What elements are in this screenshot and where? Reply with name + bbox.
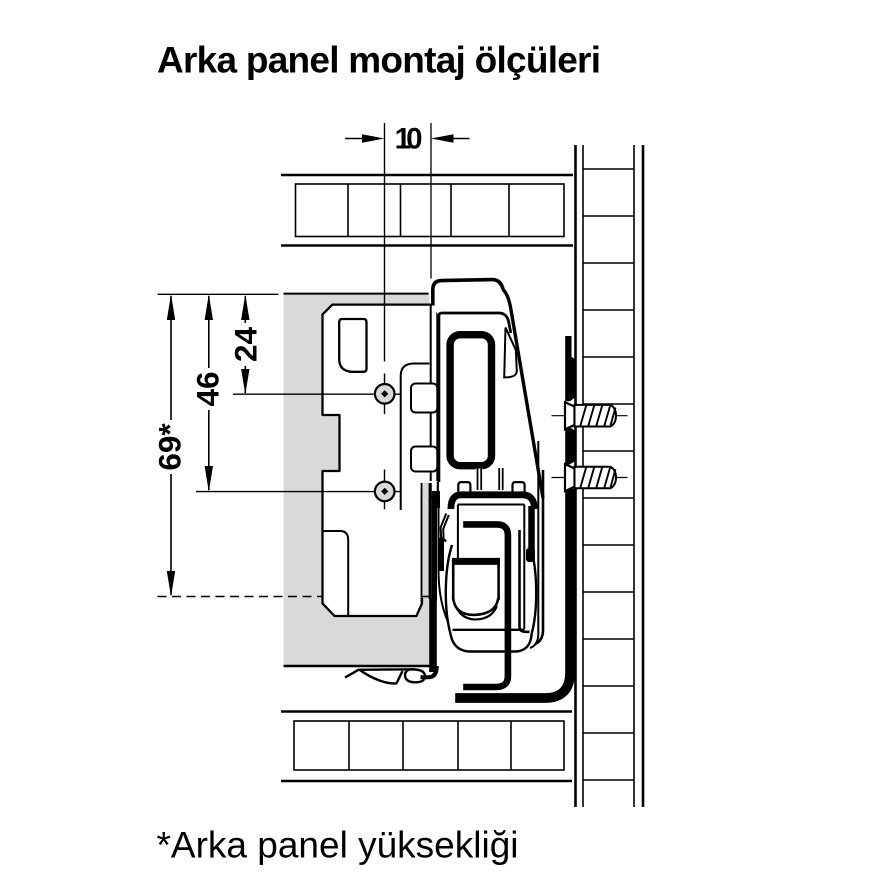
- svg-text:10: 10: [395, 122, 423, 155]
- svg-text:*Arka panel yüksekliği: *Arka panel yüksekliği: [157, 825, 519, 866]
- svg-text:69*: 69*: [152, 423, 188, 471]
- svg-text:Arka panel montaj ölçüleri: Arka panel montaj ölçüleri: [157, 39, 601, 80]
- svg-text:46: 46: [190, 371, 226, 406]
- svg-text:24: 24: [228, 327, 264, 363]
